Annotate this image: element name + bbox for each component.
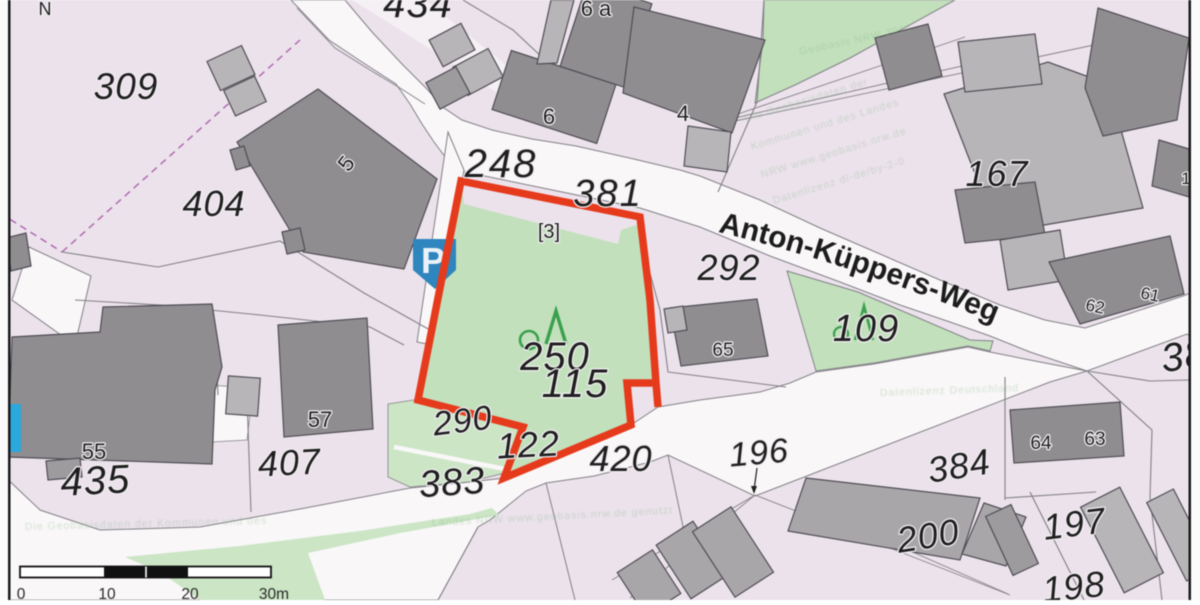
svg-text:0: 0 [17, 586, 26, 600]
svg-text:290: 290 [430, 399, 495, 444]
svg-text:N: N [39, 0, 52, 19]
svg-text:309: 309 [94, 66, 159, 107]
svg-text:115: 115 [542, 362, 609, 406]
svg-text:55: 55 [82, 439, 106, 464]
svg-text:65: 65 [712, 340, 733, 361]
svg-text:20: 20 [181, 586, 199, 600]
svg-text:198: 198 [1040, 563, 1107, 600]
svg-text:407: 407 [257, 440, 323, 484]
svg-text:30m: 30m [259, 586, 289, 600]
svg-text:196: 196 [728, 432, 791, 475]
svg-text:[3]: [3] [538, 221, 560, 243]
svg-text:435: 435 [59, 457, 131, 505]
svg-text:62: 62 [1084, 295, 1106, 318]
svg-text:404: 404 [182, 183, 245, 224]
svg-text:4: 4 [677, 101, 689, 126]
svg-text:167: 167 [965, 153, 1029, 194]
svg-text:6 a: 6 a [581, 0, 612, 21]
svg-text:383: 383 [418, 460, 487, 507]
svg-text:10: 10 [98, 586, 116, 600]
svg-text:63: 63 [1084, 429, 1105, 450]
svg-text:292: 292 [696, 247, 760, 288]
svg-text:434: 434 [383, 0, 453, 26]
svg-text:122: 122 [496, 422, 561, 466]
svg-text:61: 61 [1139, 283, 1161, 306]
svg-text:248: 248 [464, 142, 538, 186]
svg-text:109: 109 [833, 308, 899, 350]
svg-text:64: 64 [1030, 433, 1052, 454]
svg-text:57: 57 [308, 407, 332, 432]
svg-text:197: 197 [1041, 499, 1110, 547]
svg-text:381: 381 [573, 173, 642, 215]
svg-text:420: 420 [589, 438, 652, 479]
svg-text:6: 6 [543, 104, 555, 129]
